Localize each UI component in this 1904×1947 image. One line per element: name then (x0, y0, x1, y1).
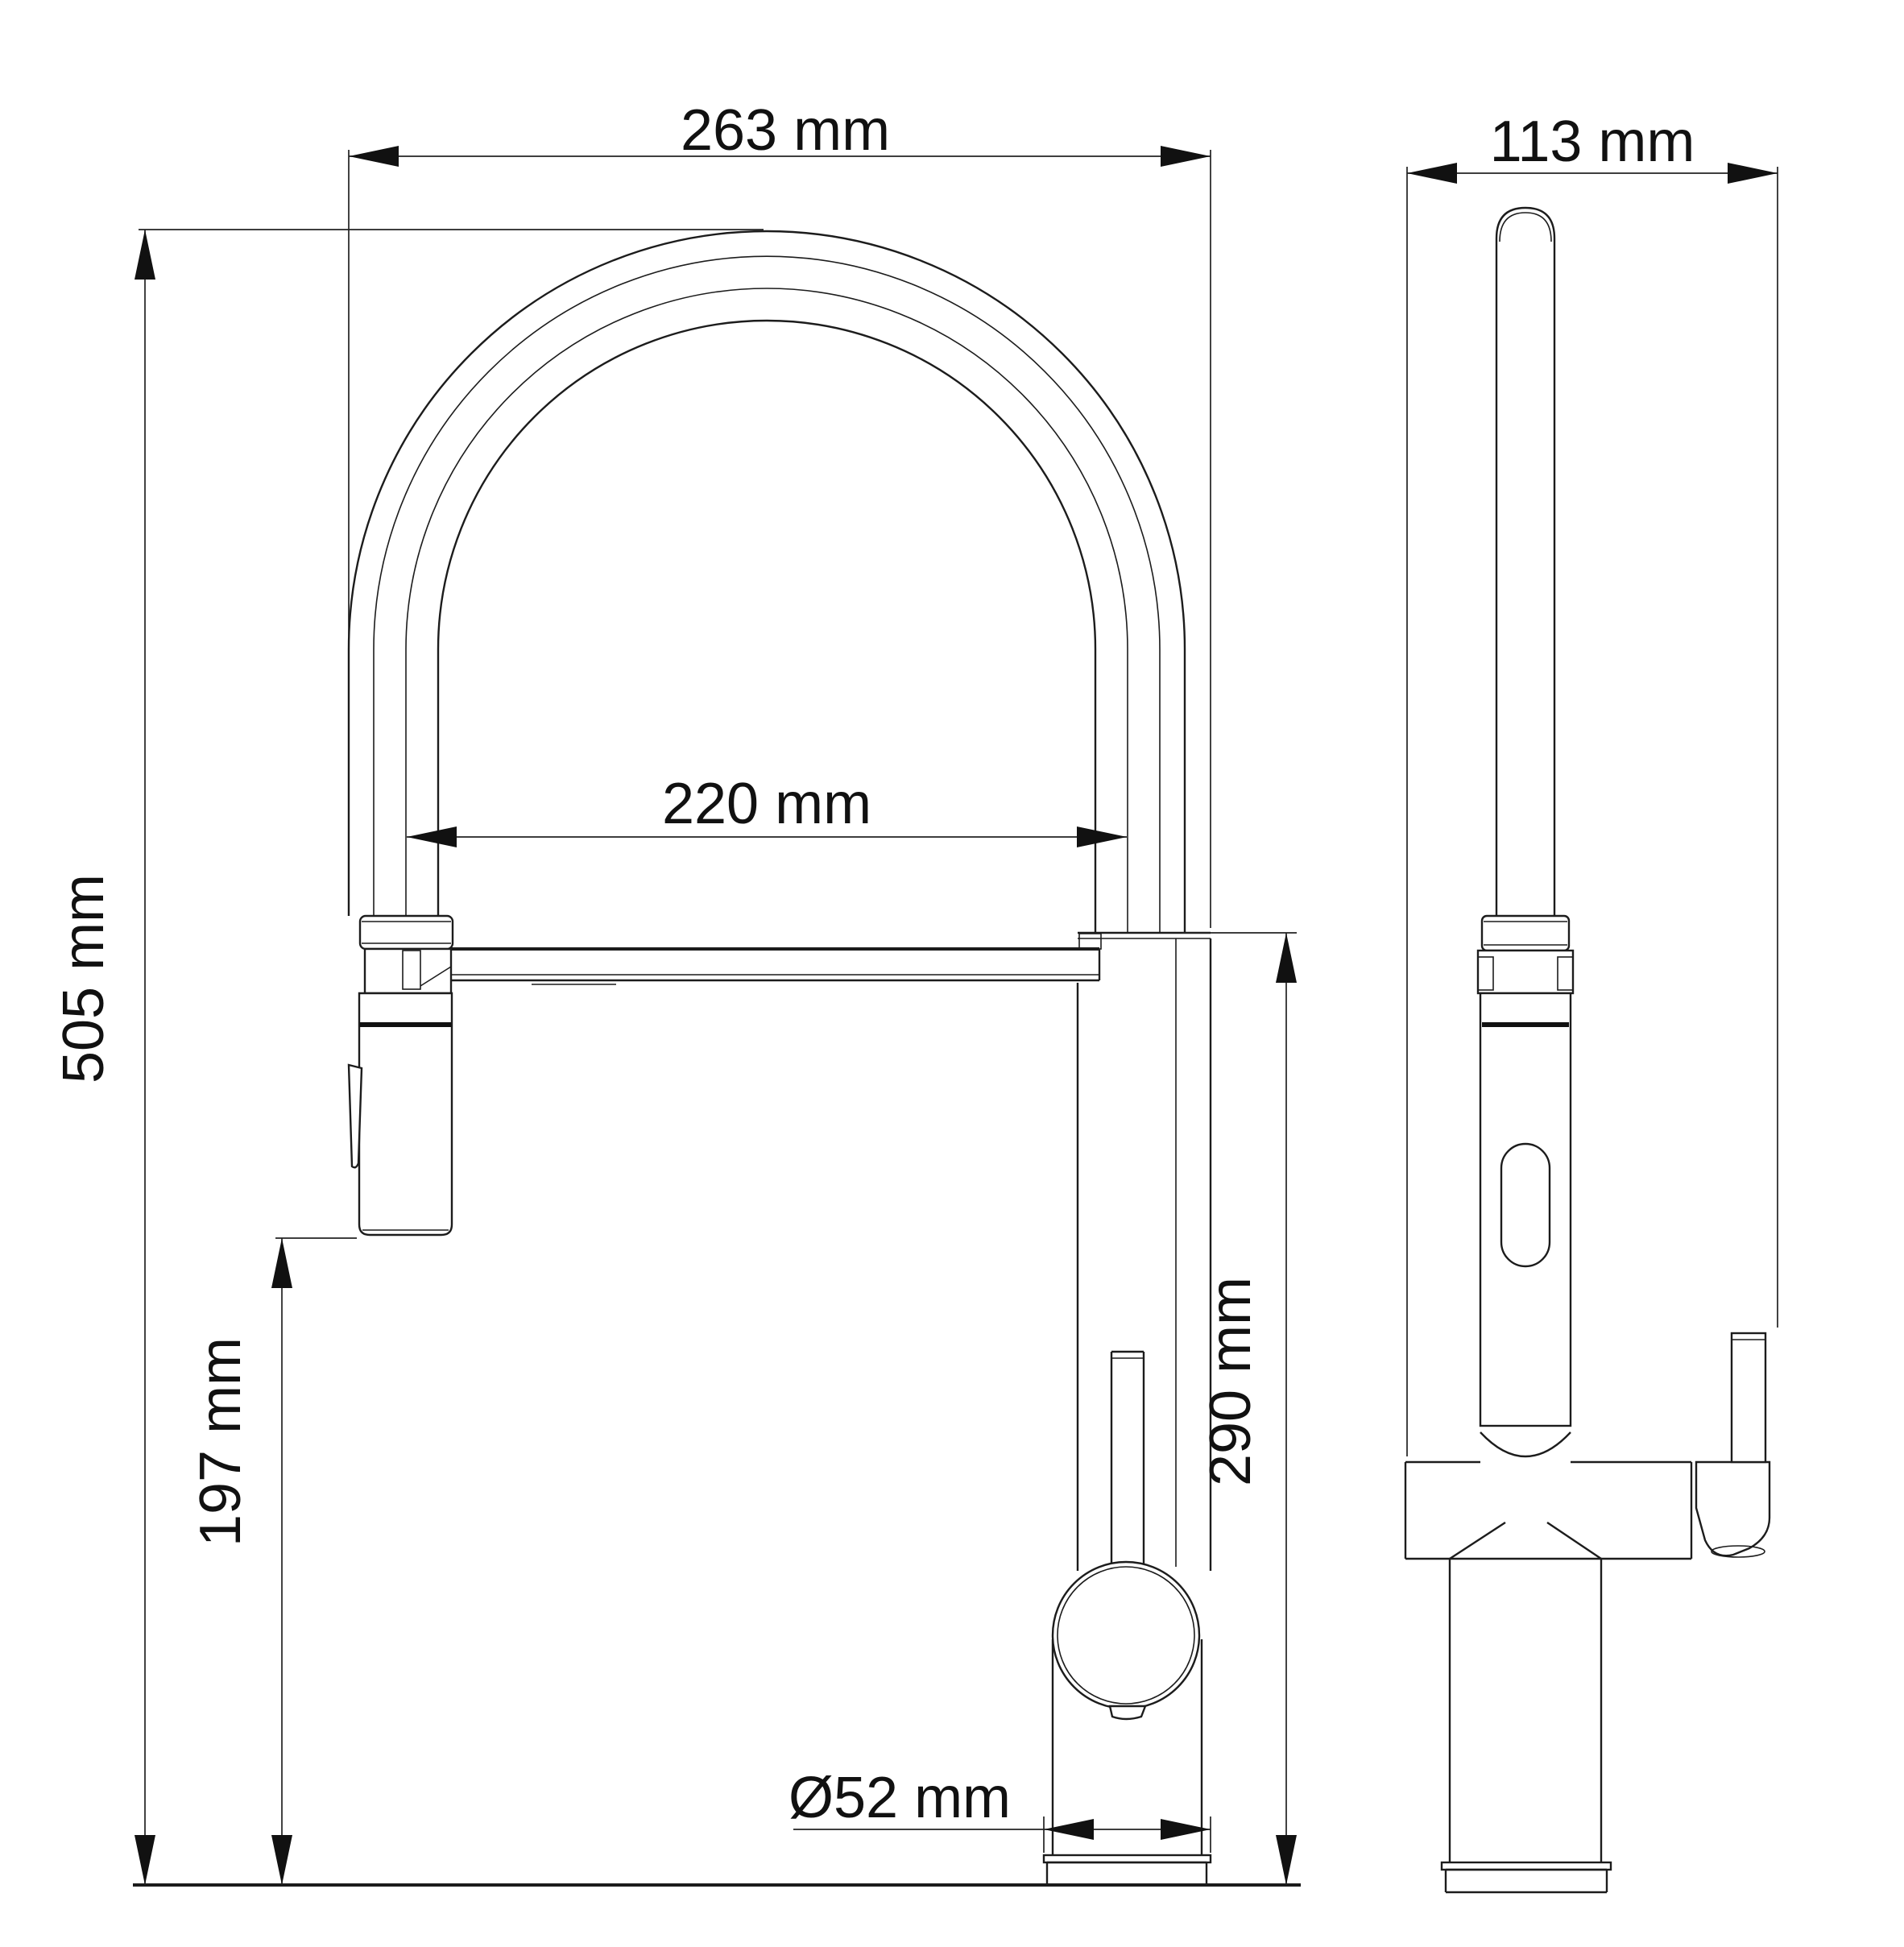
dim-label-side-depth: 113 mm (1490, 110, 1695, 174)
side-collar (1482, 916, 1569, 951)
side-bell (1450, 1522, 1601, 1862)
handle-stick-side (1732, 1333, 1765, 1462)
dim-spout-reach: 220 mm (407, 772, 1127, 847)
spray-head-connector (365, 949, 451, 993)
front-view (349, 231, 1211, 1885)
handle-ball-joint (1053, 1562, 1199, 1719)
dim-label-spout-reach: 220 mm (662, 772, 871, 836)
spray-head-collar (360, 916, 453, 949)
dim-label-head-clearance: 197 mm (188, 1337, 253, 1547)
dim-label-spout-height: 290 mm (1198, 1277, 1263, 1486)
faucet-technical-drawing: 263 mm 113 mm 220 mm 505 mm 197 mm (0, 0, 1904, 1947)
drawing-page: 263 mm 113 mm 220 mm 505 mm 197 mm (0, 0, 1904, 1947)
side-handle (1696, 1333, 1769, 1557)
right-drop-tube (1095, 649, 1185, 933)
spout-arc-outer (349, 231, 1185, 649)
base-plate-front (1044, 1855, 1211, 1885)
side-body-block (1405, 1462, 1696, 1559)
handle-stick-front (1111, 1352, 1144, 1567)
spray-head-body (359, 993, 452, 1235)
spout-arc-hose-inner (406, 288, 1128, 649)
side-head-column (1480, 993, 1571, 1456)
riser-tube-inner-dome (1500, 213, 1551, 242)
dim-base-diameter: Ø52 mm (789, 1766, 1211, 1853)
handle-boss (1696, 1462, 1769, 1556)
dim-head-clearance: 197 mm (188, 1238, 357, 1885)
left-drop-tube (349, 649, 438, 916)
spout-arc-hose-outer (374, 256, 1160, 649)
dim-label-total-height: 505 mm (52, 874, 116, 1083)
dim-label-base-diameter: Ø52 mm (789, 1766, 1011, 1830)
support-arm (451, 934, 1101, 984)
spout-arc-inner (438, 321, 1095, 649)
dim-side-depth: 113 mm (1407, 110, 1778, 1456)
base-plate-side (1442, 1862, 1611, 1892)
side-view (1405, 208, 1769, 1892)
dim-label-overall-width: 263 mm (681, 98, 890, 163)
riser-tube (1496, 208, 1554, 916)
body-top-cap (1078, 933, 1211, 938)
dim-spout-height: 290 mm (1182, 933, 1297, 1885)
side-band (1478, 951, 1573, 993)
spray-head-lever (349, 1065, 362, 1167)
